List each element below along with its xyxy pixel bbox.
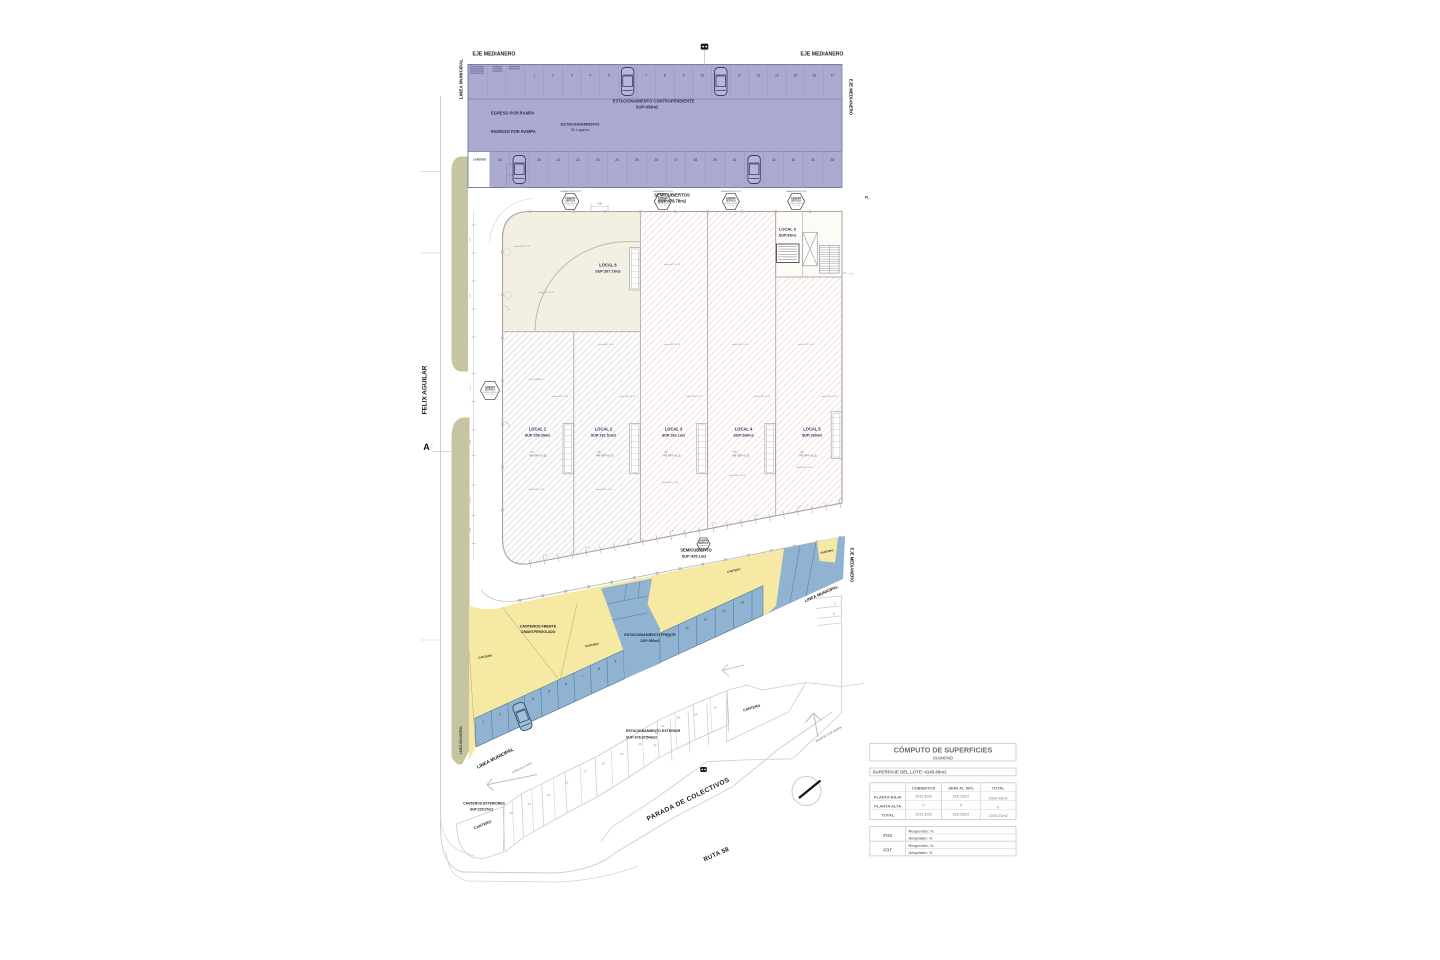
svg-text:TOTAL: TOTAL	[992, 785, 1006, 790]
svg-text:salida NPT+0.15: salida NPT+0.15	[754, 396, 771, 398]
svg-text:salida NPT+0.15: salida NPT+0.15	[664, 264, 681, 266]
svg-text:SUPERFICIE DEL LOTE: 4145.66m2: SUPERFICIE DEL LOTE: 4145.66m2	[873, 770, 948, 775]
svg-text:PB: PB	[733, 451, 737, 454]
svg-text:9: 9	[614, 659, 616, 663]
svg-text:FOS: FOS	[883, 833, 892, 838]
svg-text:LINEA MUNICIPAL: LINEA MUNICIPAL	[459, 726, 463, 755]
svg-text:salida NPT+0.15: salida NPT+0.15	[664, 344, 681, 346]
svg-text:14: 14	[775, 74, 779, 78]
svg-text:21: 21	[557, 158, 561, 162]
svg-text:12: 12	[738, 74, 742, 78]
svg-text:18: 18	[498, 158, 502, 162]
svg-text:LOCAL 2: LOCAL 2	[595, 427, 613, 432]
svg-text:0: 0	[960, 804, 962, 808]
svg-text:Adoptado: %: Adoptado: %	[909, 850, 934, 855]
svg-text:ESTACIONAMIENTO: ESTACIONAMIENTO	[561, 122, 600, 127]
svg-text:2330.03m2: 2330.03m2	[989, 797, 1008, 801]
svg-text:22: 22	[653, 743, 657, 747]
svg-text:18: 18	[602, 762, 606, 766]
svg-text:PB: PB	[800, 451, 804, 454]
svg-text:PB: PB	[664, 451, 668, 454]
svg-text:1.2 x 2.4: 1.2 x 2.4	[727, 205, 736, 207]
svg-text:SUP:267.73m2: SUP:267.73m2	[595, 270, 620, 274]
svg-text:PLANTA BAJA: PLANTA BAJA	[874, 795, 902, 800]
svg-text:2: 2	[499, 712, 501, 716]
svg-text:1: 1	[533, 74, 535, 78]
svg-text:26: 26	[713, 706, 717, 710]
svg-text:14: 14	[528, 802, 532, 806]
svg-text:28: 28	[694, 158, 698, 162]
svg-text:NPT: NPT	[850, 274, 855, 276]
svg-text:SUP:434m2: SUP:434m2	[636, 105, 659, 110]
svg-text:1: 1	[482, 720, 484, 724]
svg-text:2DO ESPACIO: 2DO ESPACIO	[529, 378, 544, 381]
svg-text:1.2 x 2.4: 1.2 x 2.4	[792, 205, 801, 207]
svg-text:LOCAL 1: LOCAL 1	[529, 427, 547, 432]
svg-text:16: 16	[812, 74, 816, 78]
svg-text:22: 22	[576, 158, 580, 162]
svg-text:salida NPT+0.15: salida NPT+0.15	[821, 396, 838, 398]
svg-text:CAMARA INSPECCION: CAMARA INSPECCION	[560, 190, 581, 193]
svg-text:salida NPT+0.15: salida NPT+0.15	[686, 396, 703, 398]
svg-text:SEPTICA: SEPTICA	[726, 200, 736, 203]
svg-text:PB NPT+0.15: PB NPT+0.15	[799, 454, 817, 458]
svg-text:26: 26	[654, 158, 658, 162]
svg-text:PB NPT+0.15: PB NPT+0.15	[596, 454, 614, 458]
svg-text:0: 0	[923, 804, 925, 808]
svg-text:PB NPT+0.15: PB NPT+0.15	[732, 454, 750, 458]
svg-text:A: A	[423, 442, 430, 452]
svg-text:SEMICUBIERTO: SEMICUBIERTO	[680, 548, 712, 553]
svg-text:salida NPT+0.15: salida NPT+0.15	[798, 344, 815, 346]
svg-text:32: 32	[772, 158, 776, 162]
svg-text:15: 15	[794, 74, 798, 78]
svg-text:27: 27	[674, 158, 678, 162]
svg-text:20: 20	[537, 158, 541, 162]
svg-text:SUP:425.1m2: SUP:425.1m2	[682, 553, 707, 558]
svg-text:EJE MEDIANERO: EJE MEDIANERO	[850, 548, 855, 583]
svg-text:SEMI AL 50%: SEMI AL 50%	[948, 785, 974, 790]
svg-text:SUP:580m2: SUP:580m2	[640, 639, 659, 643]
svg-text:2011.8m2: 2011.8m2	[915, 813, 932, 817]
svg-text:29: 29	[713, 158, 717, 162]
svg-text:4: 4	[589, 74, 591, 78]
svg-text:CAMARA: CAMARA	[698, 539, 709, 542]
svg-text:17: 17	[831, 74, 835, 78]
svg-text:Requerido: %: Requerido: %	[909, 843, 935, 848]
svg-text:EGRESO POR RAMPA: EGRESO POR RAMPA	[491, 111, 534, 116]
svg-text:1.2 x 2.4: 1.2 x 2.4	[566, 205, 575, 207]
svg-text:CANTEROS EXTERIORES: CANTEROS EXTERIORES	[463, 802, 506, 806]
svg-text:salida NPT+0.15: salida NPT+0.15	[538, 292, 555, 294]
svg-text:LOCAL 9: LOCAL 9	[779, 227, 797, 232]
svg-text:22: 22	[661, 724, 665, 728]
svg-text:20: 20	[638, 742, 642, 746]
svg-text:PB NPT+0.15: PB NPT+0.15	[663, 454, 681, 458]
svg-text:9: 9	[683, 74, 685, 78]
svg-text:13: 13	[509, 811, 513, 815]
svg-text:13: 13	[756, 74, 760, 78]
svg-text:SEMICUBIERTOS: SEMICUBIERTOS	[654, 193, 690, 198]
svg-text:35 Lugares: 35 Lugares	[571, 128, 590, 132]
svg-text:LOCAL 3: LOCAL 3	[665, 427, 683, 432]
svg-text:salida NPT+0.15: salida NPT+0.15	[528, 489, 545, 491]
svg-text:ESTACIONAMIENTO FRENTE: ESTACIONAMIENTO FRENTE	[624, 633, 676, 637]
svg-text:23: 23	[677, 715, 681, 719]
svg-text:318.23m2: 318.23m2	[952, 813, 969, 817]
svg-text:salida NPT+0.15: salida NPT+0.15	[552, 396, 569, 398]
svg-text:6.08: 6.08	[597, 202, 603, 206]
svg-text:CANTEROS FRENTE: CANTEROS FRENTE	[520, 625, 557, 629]
svg-text:SUP:93m2: SUP:93m2	[779, 234, 797, 238]
svg-text:24: 24	[694, 713, 698, 717]
svg-text:PB: PB	[530, 451, 534, 454]
svg-text:SEPTICA: SEPTICA	[565, 200, 575, 203]
svg-text:Requerido: %: Requerido: %	[909, 828, 935, 833]
svg-text:FELIX AGUILAR: FELIX AGUILAR	[422, 365, 429, 414]
svg-text:LOCAL 6: LOCAL 6	[599, 263, 617, 268]
svg-text:35: 35	[830, 158, 834, 162]
svg-text:25: 25	[635, 158, 639, 162]
svg-text:EJE MEDIANERO: EJE MEDIANERO	[849, 79, 854, 116]
svg-text:C/MANT.PERGOLADO: C/MANT.PERGOLADO	[521, 630, 556, 634]
svg-text:EJE MEDIANERO: EJE MEDIANERO	[801, 52, 844, 58]
svg-text:CAMARA INSPECCION: CAMARA INSPECCION	[786, 190, 807, 193]
svg-text:SUP:225.07m2: SUP:225.07m2	[470, 807, 493, 811]
svg-text:PB: PB	[597, 451, 601, 454]
svg-text:ESTACIONAMIENTO CONTRAPENDIENT: ESTACIONAMIENTO CONTRAPENDIENTE	[613, 99, 695, 104]
svg-text:TOTAL: TOTAL	[881, 813, 895, 818]
svg-text:salida NPT+0.15: salida NPT+0.15	[732, 344, 749, 346]
svg-text:318.23m2: 318.23m2	[952, 795, 969, 799]
svg-text:salida NPT+0.15: salida NPT+0.15	[729, 475, 746, 477]
svg-text:SUP:260m2: SUP:260m2	[802, 434, 822, 438]
svg-text:PLANTA ALTA: PLANTA ALTA	[874, 804, 901, 809]
svg-text:3: 3	[571, 74, 573, 78]
svg-text:salida NPT+0.15: salida NPT+0.15	[598, 344, 615, 346]
svg-text:5: 5	[548, 690, 550, 694]
svg-text:EJE MEDIANERO: EJE MEDIANERO	[473, 52, 516, 58]
svg-text:1.2 x 2.4: 1.2 x 2.4	[486, 394, 495, 396]
svg-text:2330.03m2: 2330.03m2	[989, 814, 1008, 818]
svg-text:15: 15	[547, 793, 551, 797]
svg-text:ESTACIONAMIENTO EXTERIOR: ESTACIONAMIENTO EXTERIOR	[626, 729, 681, 733]
svg-text:33: 33	[791, 158, 795, 162]
svg-text:34: 34	[811, 158, 815, 162]
svg-text:SUP:256.39m2: SUP:256.39m2	[525, 434, 550, 438]
svg-text:SEPTICA: SEPTICA	[485, 389, 495, 392]
svg-text:PB NPT+0.15: PB NPT+0.15	[529, 454, 547, 458]
svg-text:24: 24	[615, 158, 619, 162]
svg-text:CAMARA: CAMARA	[726, 197, 737, 200]
svg-text:8: 8	[598, 667, 600, 671]
svg-text:7: 7	[581, 675, 583, 679]
svg-text:17: 17	[583, 770, 587, 774]
svg-text:19: 19	[620, 752, 624, 756]
svg-text:SUP:261.51m2: SUP:261.51m2	[591, 434, 616, 438]
svg-text:0: 0	[997, 806, 999, 810]
svg-text:5: 5	[608, 74, 610, 78]
svg-text:10: 10	[700, 74, 704, 78]
svg-text:Adoptado: %: Adoptado: %	[909, 836, 934, 841]
svg-text:6: 6	[565, 682, 567, 686]
svg-text:8: 8	[664, 74, 666, 78]
svg-text:23: 23	[596, 158, 600, 162]
svg-text:DIAMOND: DIAMOND	[933, 756, 953, 761]
svg-text:4: 4	[532, 697, 534, 701]
svg-text:FOT: FOT	[884, 847, 893, 852]
svg-text:salida NPT+0.15: salida NPT+0.15	[662, 482, 679, 484]
svg-text:CAMARA: CAMARA	[485, 386, 496, 389]
svg-text:SUP:260m2: SUP:260m2	[733, 434, 753, 438]
svg-text:16: 16	[565, 780, 569, 784]
svg-text:LINEA MUNICIPAL: LINEA MUNICIPAL	[459, 59, 464, 99]
svg-text:SUP:478.78m2: SUP:478.78m2	[658, 198, 687, 203]
svg-text:SUP:261.1m2: SUP:261.1m2	[662, 434, 685, 438]
svg-text:SEPTICA: SEPTICA	[791, 200, 801, 203]
svg-text:LOCAL 5: LOCAL 5	[803, 427, 821, 432]
svg-text:CUBIERTOS: CUBIERTOS	[912, 785, 936, 790]
svg-text:salida NPT+0.15: salida NPT+0.15	[796, 467, 813, 469]
svg-text:1.2 x 2.4: 1.2 x 2.4	[659, 205, 668, 207]
svg-text:2011.8m2: 2011.8m2	[915, 795, 932, 799]
svg-text:7: 7	[645, 74, 647, 78]
svg-text:LOCAL 4: LOCAL 4	[735, 427, 753, 432]
svg-text:2: 2	[552, 74, 554, 78]
svg-text:salida NPT+0.15: salida NPT+0.15	[514, 246, 531, 248]
svg-text:CAMARA: CAMARA	[791, 197, 802, 200]
svg-text:SEPTICA: SEPTICA	[699, 542, 709, 545]
svg-text:SUP:678.87(54)m2: SUP:678.87(54)m2	[626, 736, 657, 740]
svg-text:CAMARA INSPECCION: CAMARA INSPECCION	[721, 190, 742, 193]
svg-text:INGRESO POR RAMPA: INGRESO POR RAMPA	[491, 129, 536, 134]
svg-text:CÓMPUTO DE SUPERFICIES: CÓMPUTO DE SUPERFICIES	[894, 745, 993, 754]
svg-text:CANTERO: CANTERO	[473, 158, 486, 162]
svg-text:CAMARA: CAMARA	[565, 197, 576, 200]
svg-text:salida NPT+0.15: salida NPT+0.15	[596, 489, 613, 491]
svg-text:30: 30	[733, 158, 737, 162]
svg-text:salida NPT+0.15: salida NPT+0.15	[619, 396, 636, 398]
svg-text:PL: PL	[865, 196, 869, 200]
